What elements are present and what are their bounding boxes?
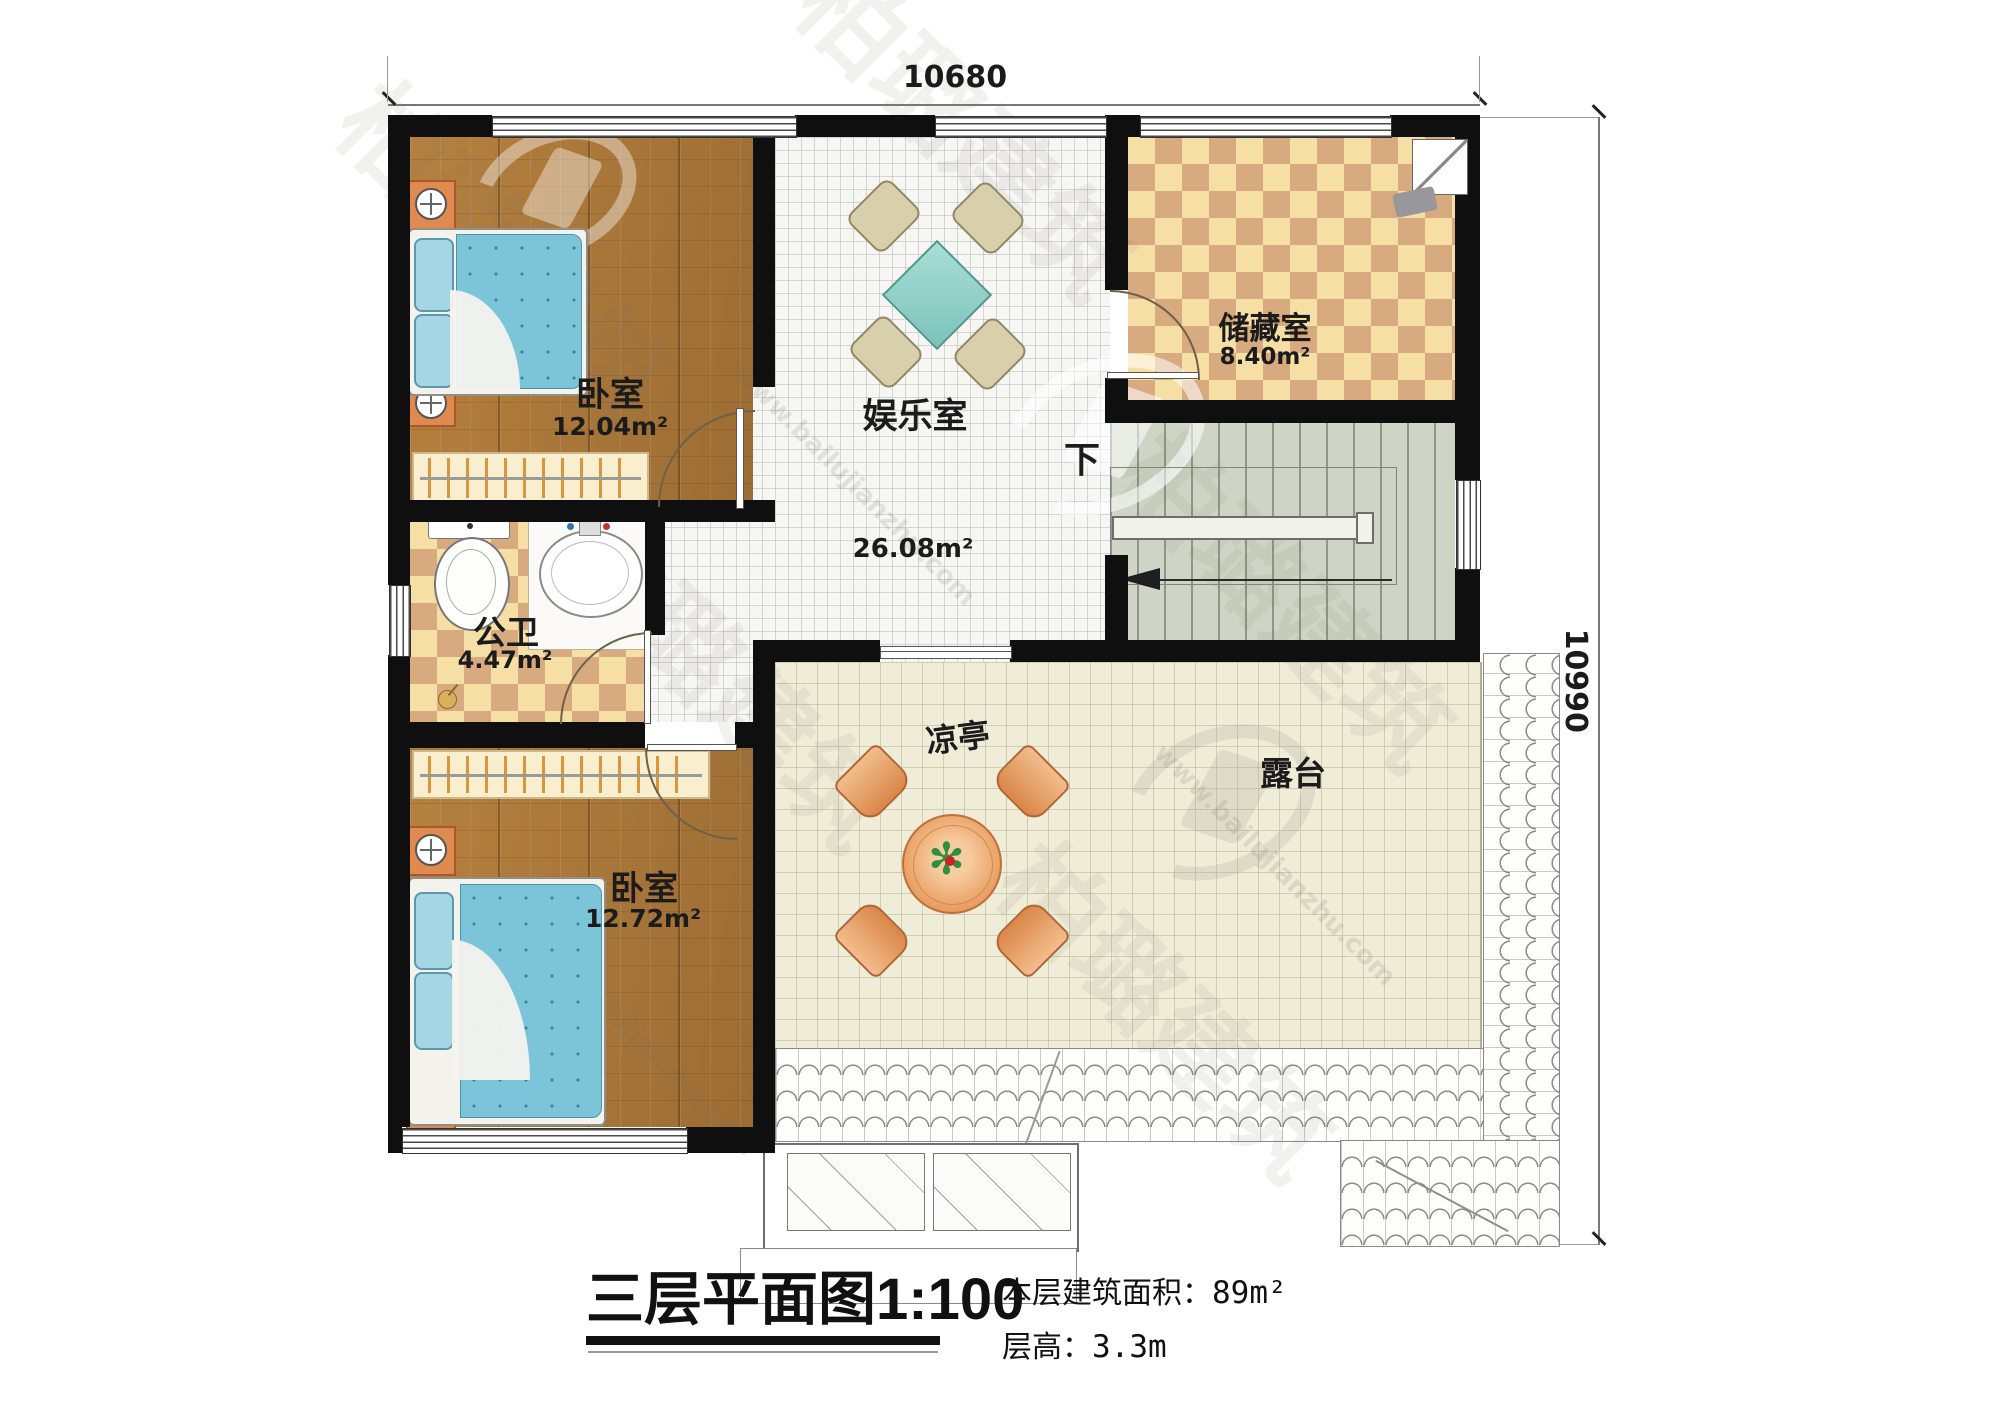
room-area-bedroom-1: 12.04m² (540, 414, 680, 440)
door-leaf (1107, 372, 1199, 379)
dormer-glass-pane (787, 1153, 925, 1231)
faucet-icon (579, 520, 601, 536)
hot-tap-dot (603, 523, 610, 530)
window (1456, 480, 1481, 570)
flower-dot (945, 856, 955, 866)
floor-plan-canvas: 柏璐建筑 柏璐建筑 柏璐建筑 柏璐建筑 柏璐建筑 www.bailujianzh… (0, 0, 2000, 1413)
roof-hip-line (1375, 1160, 1508, 1232)
nightstand (406, 180, 456, 231)
cold-tap-dot (567, 523, 574, 530)
window (935, 116, 1107, 138)
door-leaf (644, 630, 651, 724)
pillow (414, 314, 454, 388)
toilet-bowl-inner (446, 549, 496, 615)
window (389, 585, 411, 657)
pillow (414, 892, 454, 970)
window (492, 116, 797, 138)
floor-drain (438, 690, 457, 709)
extension-line (387, 56, 388, 102)
wall (1105, 115, 1140, 137)
stairs-down-label: 下 (1050, 442, 1114, 480)
floor-area-label: 本层建筑面积： (1002, 1276, 1212, 1311)
bedside-lamp-icon (415, 188, 447, 220)
pillow (414, 238, 454, 312)
window (402, 1128, 688, 1154)
floor-area-line: 本层建筑面积：89m² (1002, 1268, 1287, 1312)
wall (753, 137, 775, 387)
dimension-right-label: 10990 (1559, 606, 1591, 756)
room-area-bedroom-2: 12.72m² (573, 906, 713, 932)
wall (1105, 555, 1128, 662)
stair-direction-line (1158, 579, 1392, 581)
dimension-line-right (1598, 117, 1600, 1245)
room-area-entertainment: 26.08m² (843, 536, 983, 563)
roof-band-corner (1340, 1140, 1560, 1247)
wall (1105, 400, 1480, 423)
toilet-button (467, 523, 473, 529)
wall (388, 722, 645, 748)
extension-line (1480, 117, 1598, 118)
room-area-bathroom: 4.47m² (445, 648, 565, 673)
extension-line (1558, 1244, 1598, 1245)
wall (388, 1127, 402, 1153)
flue-vent (1412, 139, 1468, 195)
roof-band-bottom (775, 1048, 1485, 1142)
dormer-window-box (763, 1143, 1079, 1252)
room-label-entertainment: 娱乐室 (845, 399, 985, 436)
sliding-door-terrace (880, 646, 1012, 659)
floor-area-value: 89m² (1212, 1275, 1287, 1311)
title-block: 三层平面图1:100 (586, 1252, 1024, 1336)
bedside-lamp-icon (415, 834, 447, 866)
title-underline (586, 1336, 940, 1345)
room-label-terrace: 露台 (1233, 757, 1353, 792)
nightstand (406, 826, 456, 876)
page-title: 三层平面图 (586, 1265, 876, 1333)
wall (753, 640, 775, 1153)
wall (735, 722, 753, 748)
room-label-bedroom-2: 卧室 (574, 872, 714, 908)
floor-height-line: 层高：3.3m (1002, 1322, 1167, 1366)
floor-height-value: 3.3m (1092, 1329, 1167, 1365)
corridor-floor (645, 662, 753, 722)
sink-basin (539, 530, 643, 618)
stair-handrail (1112, 516, 1366, 540)
dimension-top-label: 10680 (880, 62, 1030, 94)
wardrobe-rail (420, 477, 641, 480)
door-leaf (736, 408, 744, 509)
wardrobe (412, 452, 649, 504)
window (1140, 116, 1392, 138)
stair-newel-post (1356, 512, 1374, 544)
dimension-line-top (388, 104, 1480, 106)
wall (1010, 640, 1480, 662)
wall (775, 640, 880, 662)
dormer-glass-pane (933, 1153, 1071, 1231)
title-underline-thin (588, 1351, 938, 1353)
floor-height-label: 层高： (1002, 1330, 1092, 1365)
room-label-storage: 储藏室 (1195, 313, 1335, 346)
extension-line (1479, 56, 1480, 102)
pillow (414, 972, 454, 1050)
sink-basin-inner (551, 541, 629, 605)
wall (795, 115, 935, 137)
wall (686, 1127, 775, 1153)
wall (645, 522, 665, 635)
room-area-storage: 8.40m² (1195, 345, 1335, 369)
room-label-bedroom-1: 卧室 (540, 378, 680, 414)
door-leaf (647, 744, 737, 751)
wall (1105, 137, 1128, 290)
terrace-floor (775, 662, 1482, 1050)
